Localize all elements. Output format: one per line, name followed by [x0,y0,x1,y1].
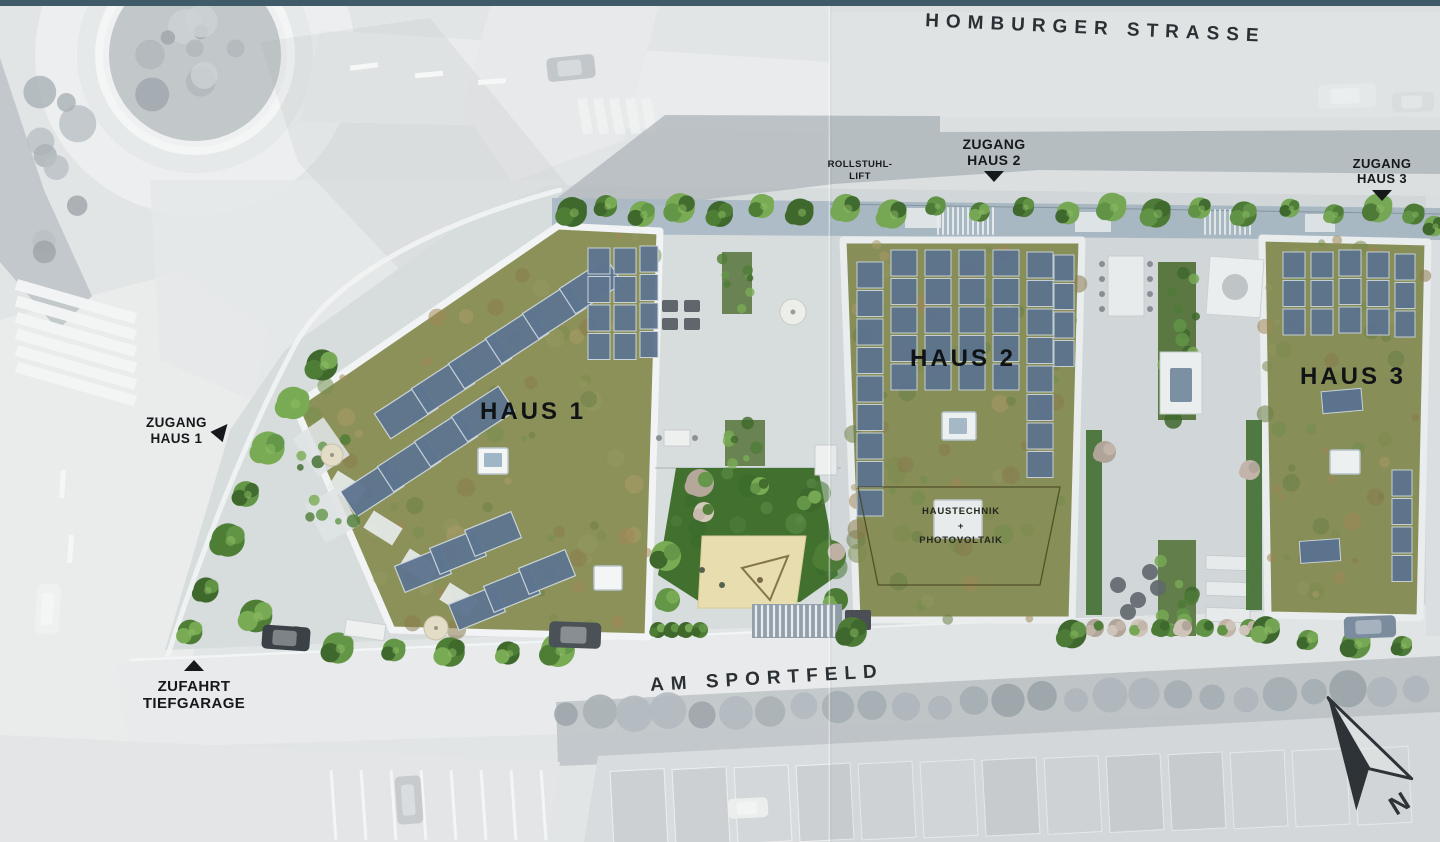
wheelchair-lift-line2: LIFT [849,171,871,183]
entrance-label-haus-1: ZUGANG HAUS 1 [146,415,264,446]
building-label-haus-2: HAUS 2 [878,345,1048,373]
wheelchair-lift-label: ROLLSTUHL- LIFT [820,159,900,183]
arrow-up-right-icon [210,419,233,442]
garage-entry-line2: TIEFGARAGE [143,695,245,712]
entrance-haus-2-line1: ZUGANG [962,136,1025,152]
haustechnik-line2: + [958,520,964,535]
north-arrow: N [1302,682,1440,842]
arrow-down-icon [1372,190,1392,201]
entrance-haus-3-line2: HAUS 3 [1357,172,1407,187]
building-label-haus-3: HAUS 3 [1268,363,1438,391]
entrance-haus-1-line2: HAUS 1 [146,431,207,447]
building-label-haus-1: HAUS 1 [448,398,618,426]
haustechnik-photovoltaik-label: HAUSTECHNIK + PHOTOVOLTAIK [878,505,1044,549]
arrow-down-icon [984,171,1004,182]
arrow-up-icon [184,660,204,671]
entrance-haus-3-line1: ZUGANG [1353,157,1412,172]
garage-entry-line1: ZUFAHRT [158,678,231,695]
site-plan: HOMBURGER STRASSE AM SPORTFELD ZUGANG HA… [0,0,1440,842]
compass-n-label: N [1383,786,1415,821]
entrance-label-haus-3: ZUGANG HAUS 3 [1334,157,1430,201]
haustechnik-line1: HAUSTECHNIK [922,505,1000,520]
garage-entry-label: ZUFAHRT TIEFGARAGE [110,660,278,713]
entrance-haus-2-line2: HAUS 2 [967,152,1021,168]
wheelchair-lift-line1: ROLLSTUHL- [828,159,893,171]
entrance-label-haus-2: ZUGANG HAUS 2 [938,136,1050,182]
haustechnik-line3: PHOTOVOLTAIK [919,534,1003,549]
entrance-haus-1-line1: ZUGANG [146,415,207,431]
